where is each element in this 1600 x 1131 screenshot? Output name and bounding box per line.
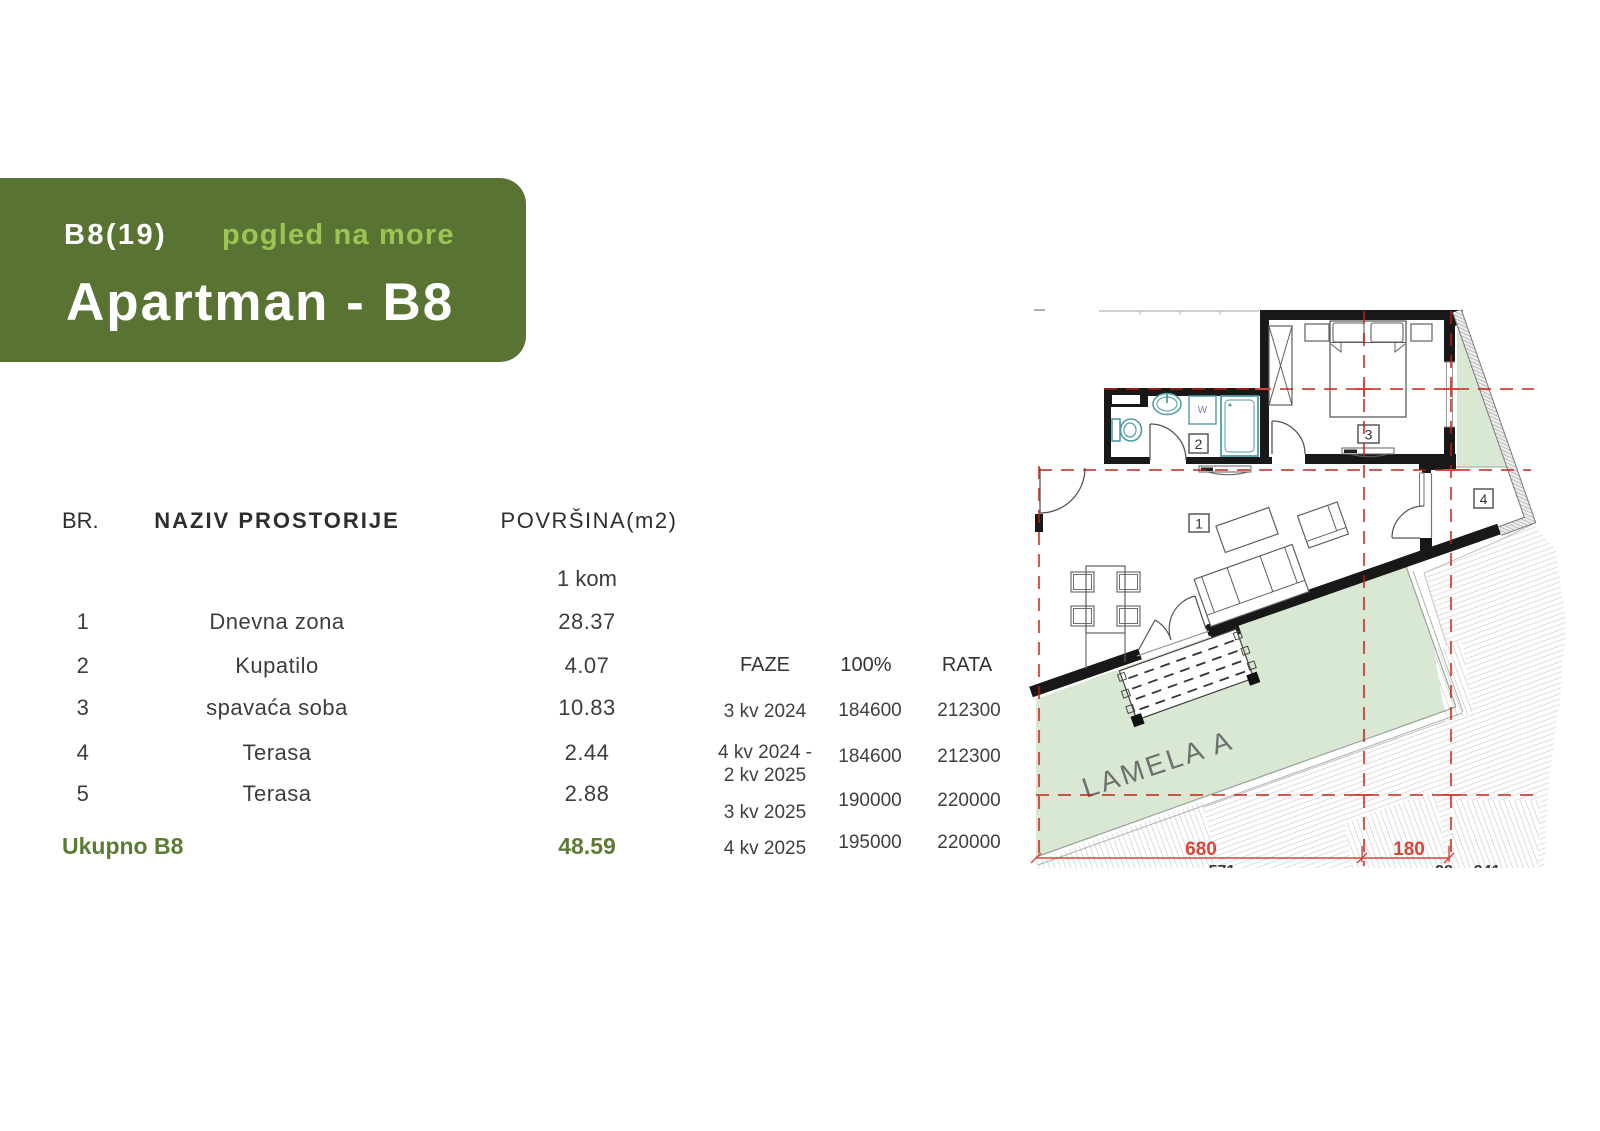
svg-text:680: 680 [1185,839,1217,860]
svg-text:1: 1 [1195,516,1203,532]
svg-text:98: 98 [1435,863,1453,880]
svg-text:180: 180 [1393,839,1425,860]
svg-text:2: 2 [1195,436,1203,452]
svg-text:4: 4 [1480,491,1488,507]
svg-text:W: W [1198,405,1208,416]
svg-text:241: 241 [1474,863,1501,880]
svg-text:571: 571 [1209,863,1236,880]
svg-text:3: 3 [1365,427,1373,443]
